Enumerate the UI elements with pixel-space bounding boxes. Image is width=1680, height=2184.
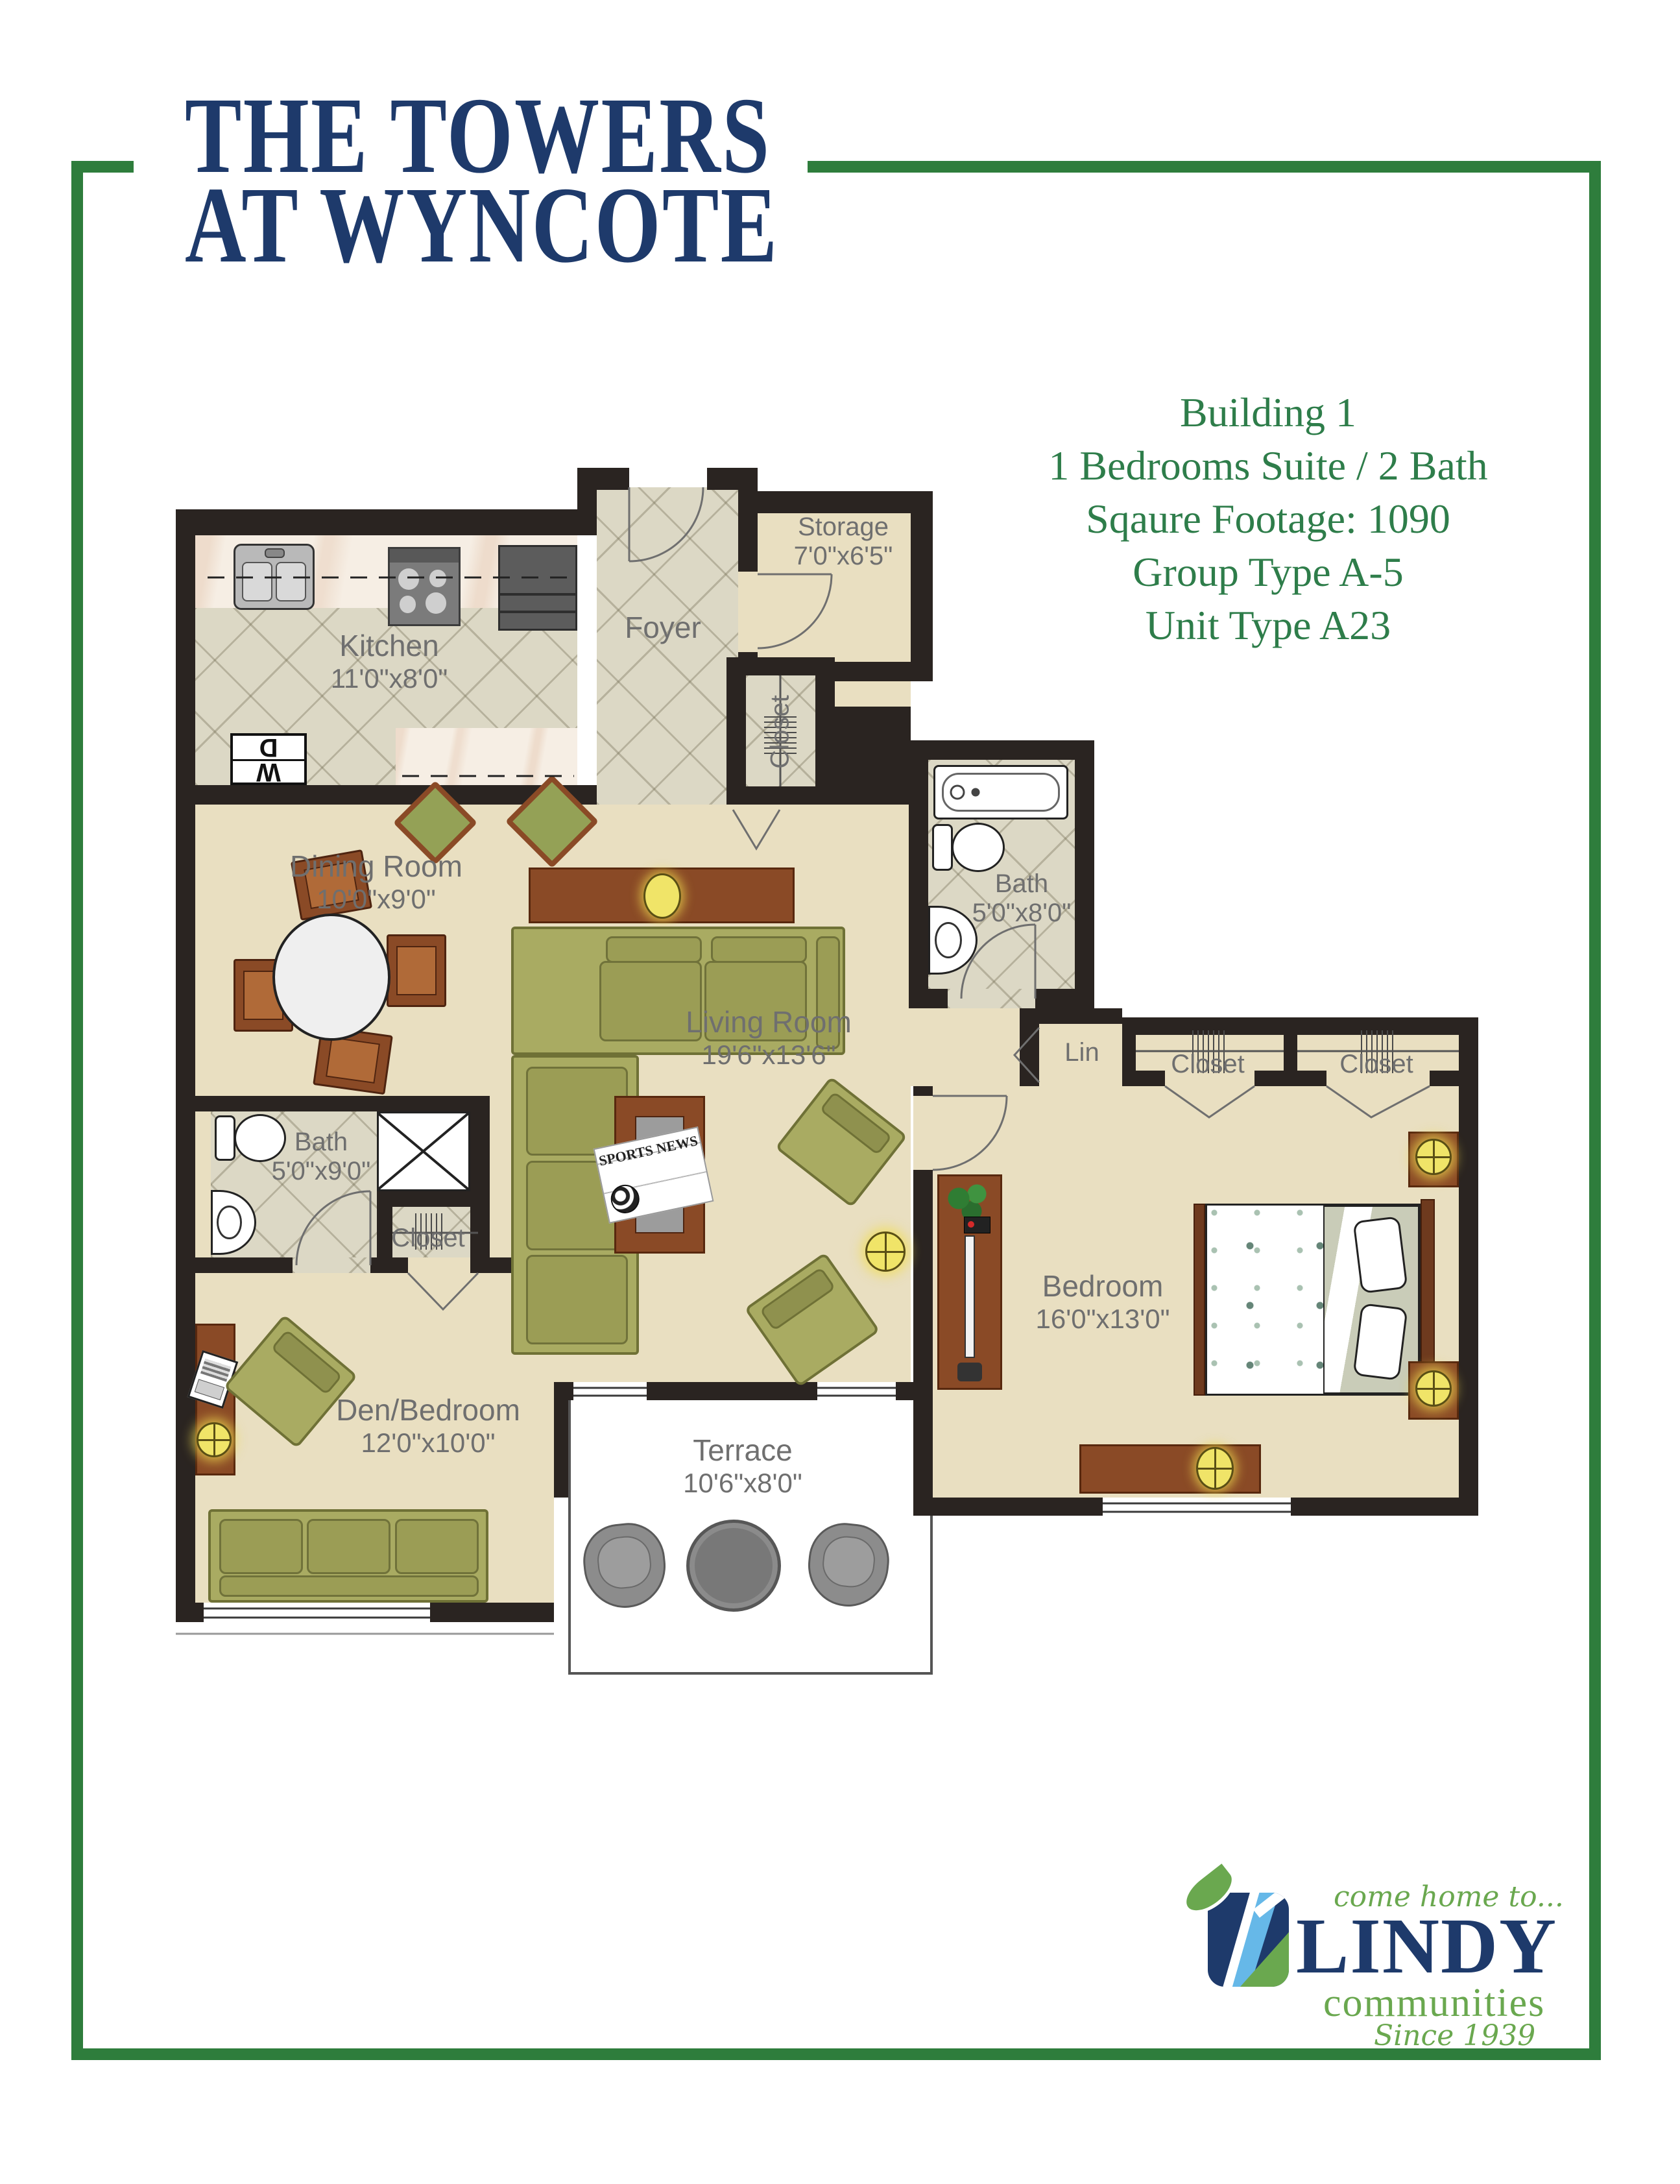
bath-closet-label: Closet (391, 1224, 464, 1253)
bedroom-label: Bedroom 16'0"x13'0" (1035, 1268, 1170, 1335)
logo-since: Since 1939 (1374, 2019, 1535, 2052)
foyer-closet-label: Closet (766, 695, 795, 768)
kitchen-label: Kitchen 11'0"x8'0" (331, 628, 448, 694)
foyer-label: Foyer (625, 610, 701, 645)
dining-label: Dining Room 10'0"x9'0" (290, 849, 462, 915)
bath-left-label: Bath 5'0"x9'0" (272, 1128, 371, 1186)
closet2-label: Closet (1339, 1050, 1413, 1079)
den-label: Den/Bedroom 12'0"x10'0" (336, 1392, 520, 1459)
lindy-logo: come home to... LINDY communities Since … (1168, 1856, 1596, 2063)
bath-right-label: Bath 5'0"x8'0" (972, 869, 1072, 928)
closet-rod-icon (392, 675, 1459, 1233)
logo-name: LINDY (1296, 1901, 1557, 1992)
flyer-page: THE TOWERS AT WYNCOTE Building 1 1 Bedro… (0, 0, 1680, 2184)
lin-label: Lin (1064, 1038, 1099, 1067)
living-label: Living Room 19'6"x13'6" (686, 1004, 852, 1071)
lindy-logo-icon (1208, 1893, 1289, 1987)
shower-x-icon (378, 1113, 468, 1189)
closet1-label: Closet (1171, 1050, 1244, 1079)
tub-faucet-icon (951, 786, 979, 799)
storage-label: Storage 7'0"x6'5" (794, 513, 893, 571)
bifold-door-icon (408, 810, 1430, 1309)
terrace-label: Terrace 10'6"x8'0" (683, 1433, 802, 1499)
